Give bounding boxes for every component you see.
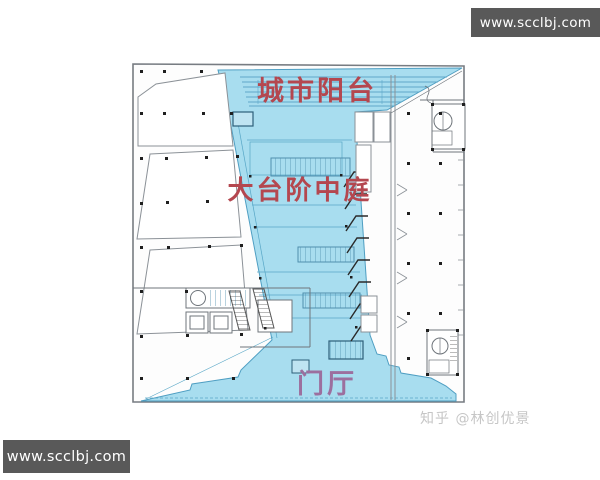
credit-watermark: 知乎 @林创优景 — [420, 408, 530, 428]
label-grand-stair-atrium: 大台阶中庭 — [227, 175, 372, 206]
label-foyer: 门厅 — [297, 369, 357, 400]
label-city-balcony: 城市阳台 — [257, 75, 377, 107]
screenshot-root: www.scclbj.com — [0, 0, 600, 480]
watermark-bottom-left: www.scclbj.com — [3, 440, 130, 473]
bottom-right-core — [427, 330, 458, 375]
